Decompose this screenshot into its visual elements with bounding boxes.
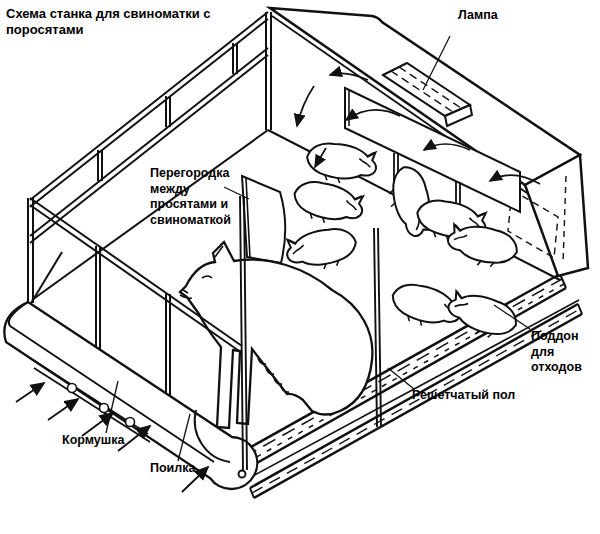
label-lamp: Лампа [458, 8, 498, 24]
diagram-title: Схема станка для свиноматки с поросятами [6, 6, 286, 39]
farrowing-pen-diagram: Схема станка для свиноматки с поросятами… [0, 0, 600, 534]
label-feeder: Кормушка [62, 433, 124, 449]
piglet-figure [289, 177, 366, 231]
label-drinker: Поилка [150, 461, 195, 477]
label-partition: Перегородка между просятами и свиноматко… [150, 166, 270, 229]
sow-figure [180, 242, 372, 428]
label-waste-tray: Поддон для отходов [531, 329, 600, 376]
piglet-figure [444, 220, 520, 272]
pen-drawing [0, 0, 600, 534]
back-wall [28, 12, 271, 303]
label-slatted-floor: Решетчатый пол [412, 388, 515, 404]
